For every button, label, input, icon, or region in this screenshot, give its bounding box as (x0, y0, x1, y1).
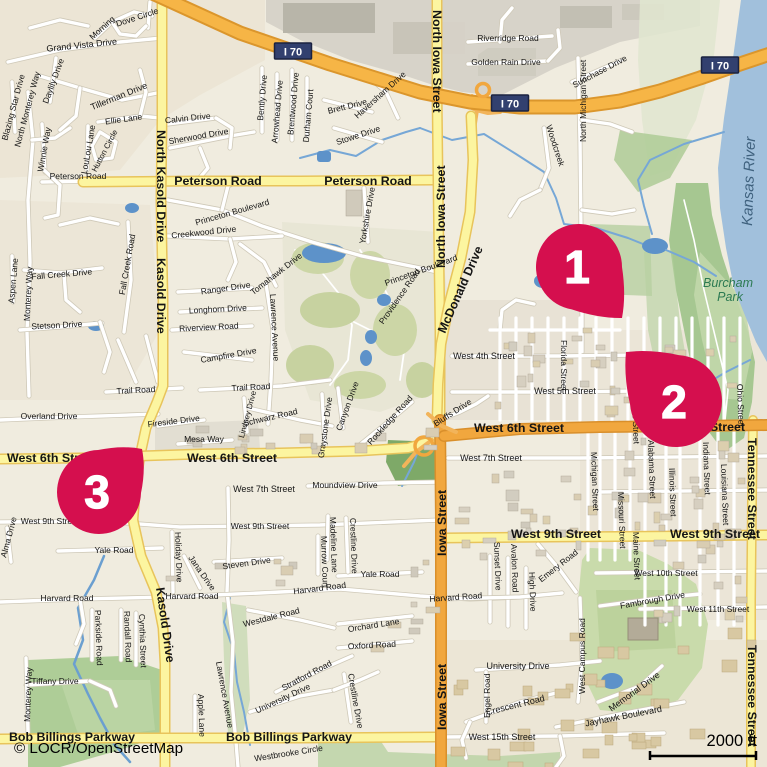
svg-text:I 70: I 70 (501, 99, 519, 111)
svg-text:Florida Street: Florida Street (559, 340, 569, 392)
svg-text:Tennessee Street: Tennessee Street (745, 438, 759, 540)
svg-text:Illinois Street: Illinois Street (667, 468, 679, 518)
svg-text:West 9th Street: West 9th Street (511, 527, 601, 541)
svg-text:Bob Billings Parkway: Bob Billings Parkway (226, 730, 352, 744)
svg-text:Apple Lane: Apple Lane (196, 694, 208, 738)
svg-text:Michigan Street: Michigan Street (589, 452, 601, 512)
svg-text:Peterson Road: Peterson Road (324, 174, 411, 188)
svg-text:Missouri Street: Missouri Street (616, 492, 628, 550)
svg-text:Trail Road: Trail Road (116, 384, 156, 396)
svg-text:Cynthia Street: Cynthia Street (137, 614, 149, 669)
svg-text:West 6th Street: West 6th Street (187, 451, 277, 465)
svg-text:Yale Road: Yale Road (360, 569, 399, 579)
svg-text:2: 2 (661, 376, 687, 428)
svg-text:Tiffany Drive: Tiffany Drive (31, 676, 79, 686)
svg-text:University Drive: University Drive (486, 661, 549, 671)
svg-text:West 7th Street: West 7th Street (460, 453, 522, 463)
svg-text:Moundview Drive: Moundview Drive (312, 480, 377, 490)
svg-text:3: 3 (84, 466, 110, 518)
svg-text:Harvard Road: Harvard Road (166, 591, 219, 601)
svg-text:North Michigan Street: North Michigan Street (578, 59, 588, 142)
svg-text:Kansas River: Kansas River (739, 135, 759, 226)
svg-text:Avalon Road: Avalon Road (509, 544, 521, 593)
svg-text:West 10th Street: West 10th Street (634, 568, 698, 578)
svg-text:Riverridge Road: Riverridge Road (477, 33, 539, 43)
svg-text:North Kasold Drive: North Kasold Drive (154, 130, 168, 242)
svg-text:Harvard Road: Harvard Road (41, 593, 94, 603)
svg-text:1: 1 (564, 241, 590, 293)
svg-text:Holiday Drive: Holiday Drive (173, 532, 185, 583)
svg-text:Alabama Street: Alabama Street (646, 440, 658, 500)
svg-text:West Campus Road: West Campus Road (577, 618, 587, 694)
svg-text:Monterey Way: Monterey Way (22, 667, 34, 723)
svg-text:North Iowa Street: North Iowa Street (430, 10, 444, 113)
svg-text:I 70: I 70 (284, 47, 302, 59)
svg-text:Kasold Drive: Kasold Drive (154, 258, 168, 334)
svg-text:Iowa Street: Iowa Street (435, 490, 449, 556)
svg-text:I 70: I 70 (711, 61, 729, 73)
svg-text:Burcham: Burcham (703, 276, 753, 290)
svg-text:North Iowa Street: North Iowa Street (434, 165, 448, 268)
svg-text:West 15th Street: West 15th Street (469, 732, 536, 742)
svg-text:Mesa Way: Mesa Way (184, 434, 225, 444)
svg-text:Parkside Road: Parkside Road (93, 610, 105, 666)
svg-text:Peterson Road: Peterson Road (174, 174, 261, 188)
svg-text:Overland Drive: Overland Drive (21, 411, 78, 421)
svg-text:Indiana Street: Indiana Street (701, 442, 713, 496)
svg-text:Yale Road: Yale Road (94, 545, 133, 555)
svg-text:Murrow Court: Murrow Court (319, 536, 331, 588)
svg-text:Crestline Drive: Crestline Drive (348, 518, 360, 574)
svg-text:Randall Road: Randall Road (122, 611, 134, 663)
svg-text:West 9th Street: West 9th Street (670, 527, 760, 541)
svg-text:West 9th Street: West 9th Street (231, 521, 290, 531)
svg-text:Iowa Street: Iowa Street (435, 664, 449, 730)
svg-text:© LOCR/OpenStreetMap: © LOCR/OpenStreetMap (14, 740, 183, 757)
svg-text:West 4th Street: West 4th Street (453, 351, 515, 361)
svg-text:Park: Park (717, 290, 743, 304)
svg-text:West 6th Street: West 6th Street (474, 421, 564, 435)
svg-text:2000 ft: 2000 ft (707, 732, 758, 750)
svg-text:West 7th Street: West 7th Street (233, 484, 295, 494)
svg-text:Golden Rain Drive: Golden Rain Drive (471, 57, 541, 67)
svg-text:Sunset Drive: Sunset Drive (492, 542, 504, 591)
svg-text:West 11th Street: West 11th Street (687, 604, 750, 614)
svg-text:Peterson Road: Peterson Road (50, 171, 107, 181)
